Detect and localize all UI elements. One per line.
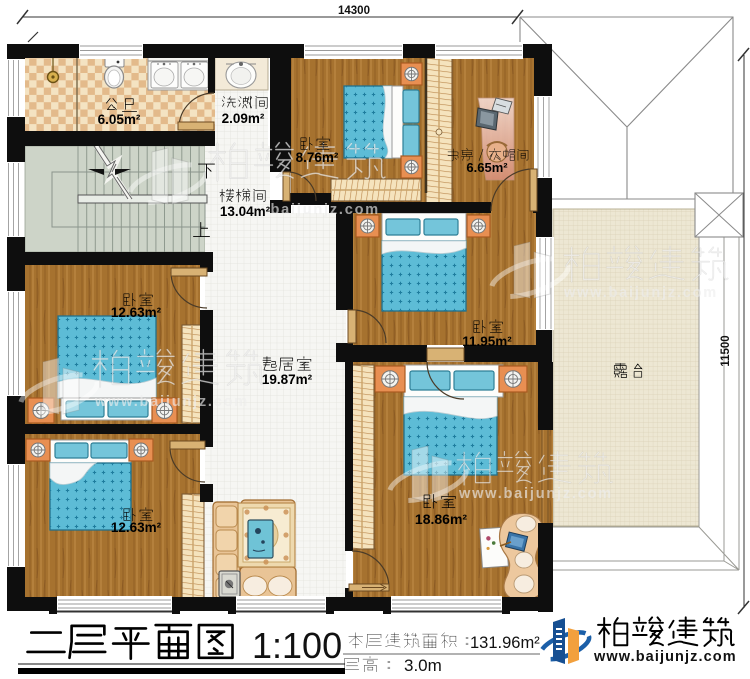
svg-text:8.76m²: 8.76m² (296, 150, 339, 165)
svg-text:12.63m²: 12.63m² (111, 520, 162, 535)
svg-text:11500: 11500 (720, 335, 732, 366)
svg-text:14300: 14300 (338, 5, 370, 17)
svg-text:2.09m²: 2.09m² (222, 111, 265, 126)
svg-text:13.04m²: 13.04m² (220, 204, 271, 219)
svg-text:www.baijunjz.com: www.baijunjz.com (563, 285, 718, 301)
svg-text:19.87m²: 19.87m² (262, 372, 313, 387)
svg-text:www.baijunjz.com: www.baijunjz.com (458, 486, 613, 502)
svg-text:1:100: 1:100 (252, 625, 342, 666)
svg-text:6.05m²: 6.05m² (98, 112, 141, 127)
svg-text:18.86m²: 18.86m² (415, 511, 467, 527)
svg-text:www.baijunjz.com: www.baijunjz.com (94, 394, 249, 410)
svg-text:12.63m²: 12.63m² (111, 305, 162, 320)
svg-text:www.baijunjz.com: www.baijunjz.com (593, 649, 737, 665)
svg-text:3.0m: 3.0m (404, 656, 442, 675)
svg-text:131.96m²: 131.96m² (470, 634, 540, 652)
svg-text:11.95m²: 11.95m² (462, 334, 512, 349)
svg-text:6.65m²: 6.65m² (466, 160, 508, 175)
